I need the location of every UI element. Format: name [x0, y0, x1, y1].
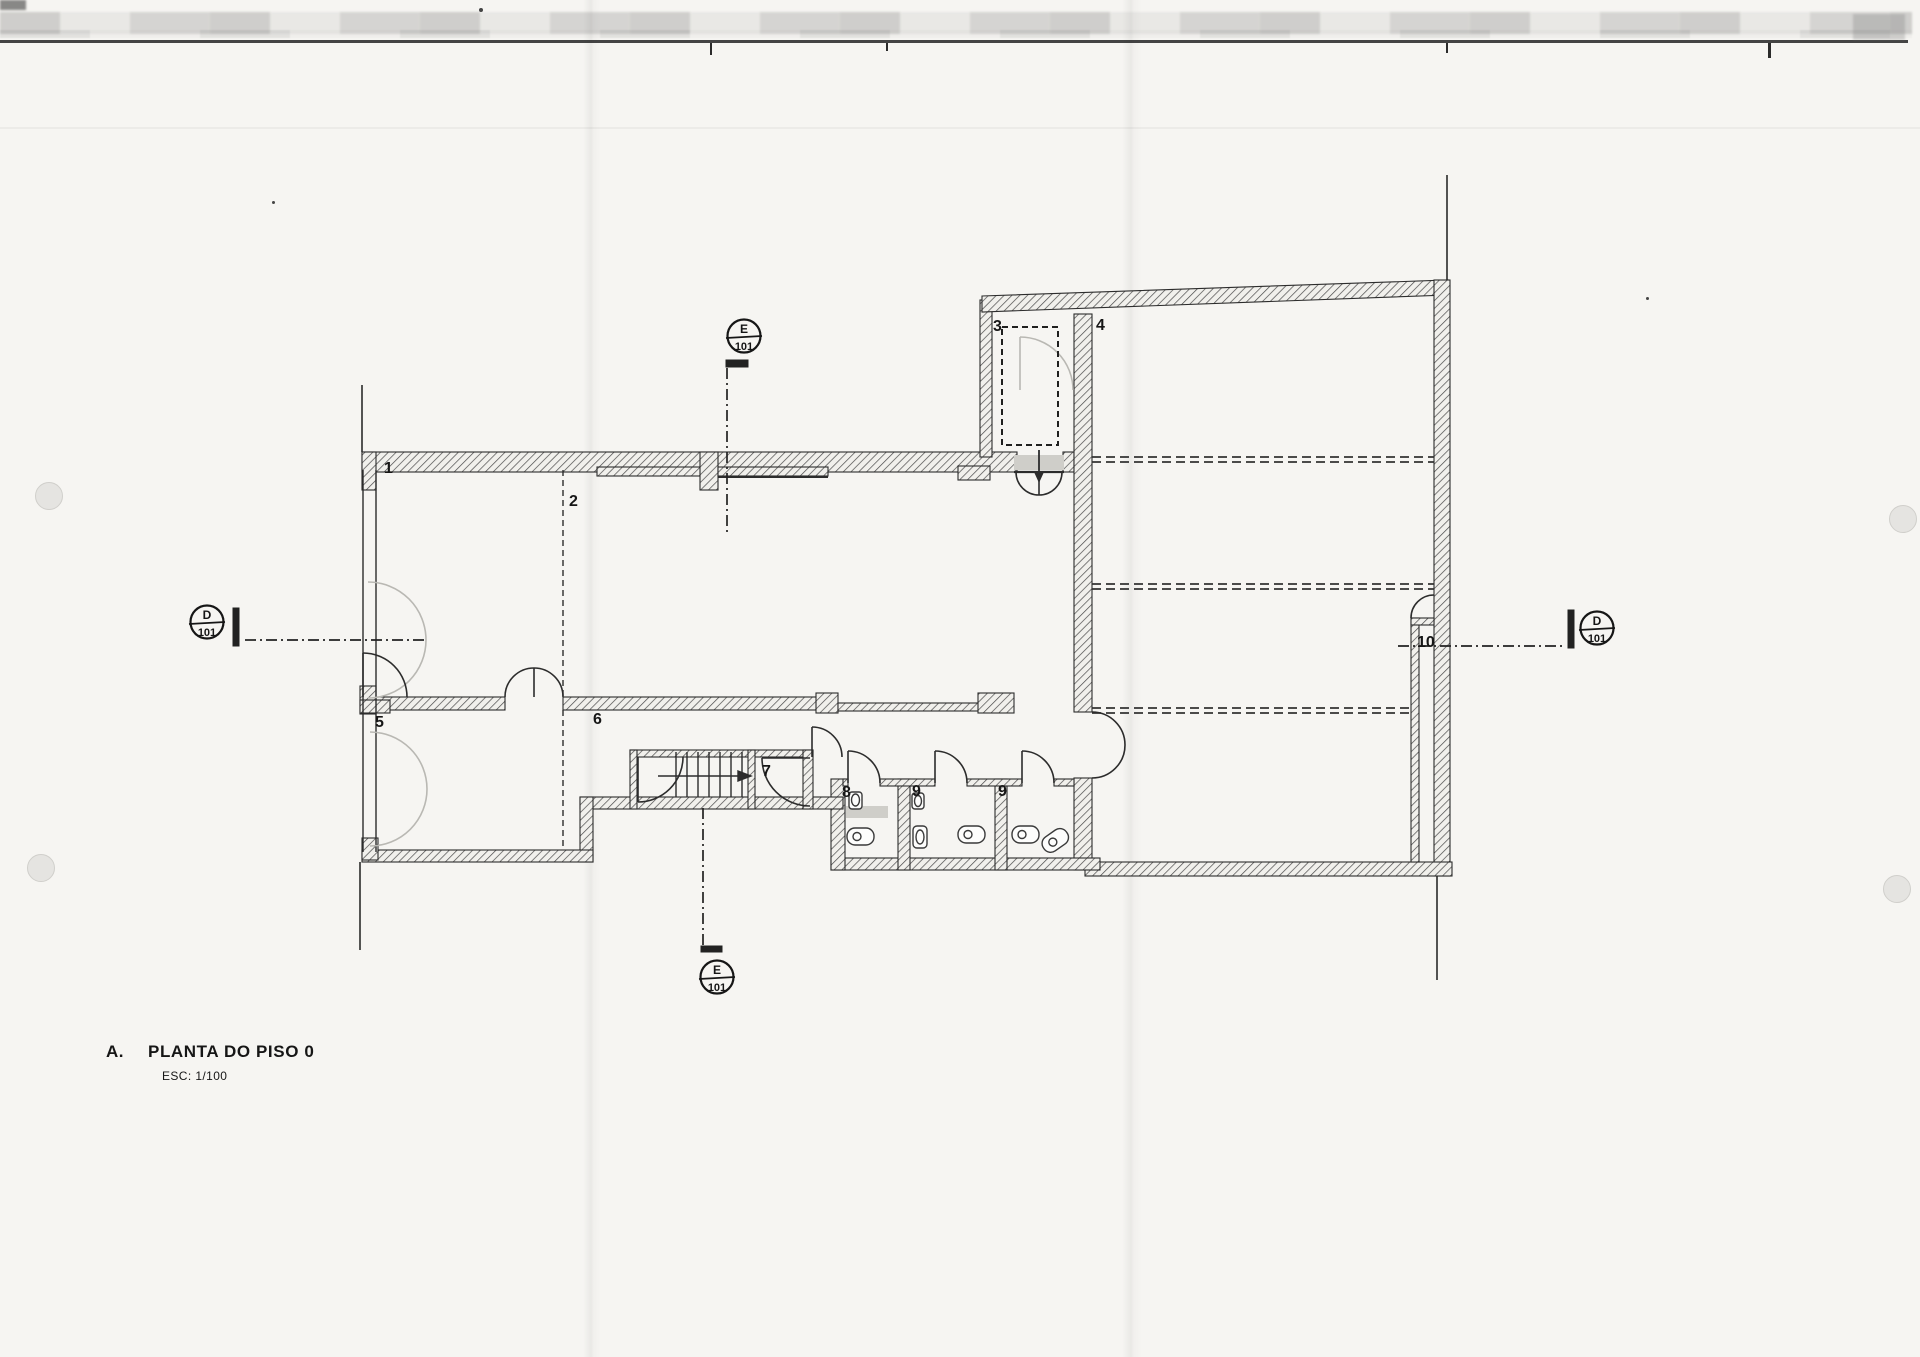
wall-segment: [362, 452, 376, 490]
wall-segment: [748, 750, 755, 809]
door-swing-arc: [534, 668, 563, 697]
scanned-sheet: E 101 D 101 D 101 E 101 1 2 3 4: [0, 0, 1920, 1357]
section-tick: [233, 608, 239, 646]
wall-segment: [360, 700, 390, 713]
arrow-head: [1034, 472, 1044, 483]
marker-sheet: 101: [1588, 633, 1606, 645]
toilet-angled: [1039, 825, 1072, 855]
drawing-scale: ESC: 1/100: [162, 1069, 314, 1083]
marker-sheet: 101: [708, 982, 726, 994]
door-swing-arc: [1411, 595, 1434, 618]
wall-segment: [967, 779, 1022, 786]
door-swing-arc: [812, 727, 842, 757]
wall-segment: [563, 697, 818, 710]
wall-segment: [630, 750, 637, 809]
wall-segment: [597, 467, 701, 476]
room-label-1: 1: [384, 460, 393, 477]
wall-segment: [1074, 314, 1092, 712]
wall-segment: [362, 850, 593, 862]
sanitary-fixtures: [847, 792, 1072, 855]
marker-letter: E: [713, 963, 721, 977]
room-label-9a: 9: [912, 783, 921, 800]
marker-divider: [699, 977, 735, 979]
marker-letter: E: [740, 322, 748, 336]
wall-segment: [958, 466, 990, 480]
door-swing-arc: [848, 751, 880, 783]
door-swing-arc: [505, 668, 534, 697]
staircase: [658, 752, 751, 797]
wall-segment: [1434, 280, 1450, 876]
wall-segment: [630, 750, 813, 757]
walls: [360, 280, 1452, 876]
wall-segment: [838, 703, 980, 711]
door-swing-arc: [1022, 751, 1054, 783]
wall-pier: [978, 693, 1014, 713]
wall-segment: [1074, 778, 1092, 870]
sink-basin: [916, 830, 924, 844]
marker-divider: [726, 336, 762, 338]
door-swing-arc: [1039, 472, 1062, 495]
wall-segment: [898, 779, 910, 870]
wall-segment: [803, 750, 813, 809]
overhead-beam-lines: [1092, 457, 1434, 713]
wall-pier: [700, 452, 718, 490]
shaft-dashed-outline: [1002, 327, 1058, 445]
wall-segment: [1054, 779, 1074, 786]
room-label-10: 10: [1417, 634, 1435, 651]
marker-sheet: 101: [735, 341, 753, 353]
marker-letter: D: [1593, 614, 1602, 628]
gray-fixtures: [846, 455, 1064, 818]
glazed-wall: [363, 470, 1064, 852]
wall-pier: [816, 693, 838, 713]
section-marker-e-top: E 101: [726, 320, 762, 354]
wall-segment: [831, 858, 1100, 870]
section-tick: [726, 360, 748, 367]
sink-basin: [852, 794, 860, 806]
marker-sheet: 101: [198, 627, 216, 639]
floor-plan-svg: E 101 D 101 D 101 E 101 1 2 3 4: [0, 0, 1920, 1357]
drawing-index: A.: [106, 1042, 124, 1062]
section-tick: [1568, 610, 1574, 648]
wall-segment: [1411, 618, 1434, 625]
wall-segment: [1411, 618, 1419, 862]
section-marker-e-bottom: E 101: [699, 961, 735, 995]
marker-divider: [189, 622, 225, 624]
toilet-bowl: [964, 831, 972, 839]
wall-segment: [718, 467, 828, 476]
door-swing-arc: [935, 751, 967, 783]
room-label-3: 3: [993, 318, 1002, 335]
room-label-4: 4: [1096, 317, 1105, 334]
door-swing-arc: [1020, 337, 1073, 390]
room-label-2: 2: [569, 493, 578, 510]
doors: [363, 472, 1434, 806]
toilet-bowl: [1018, 831, 1026, 839]
section-marker-d-right: D 101: [1579, 612, 1615, 646]
wall-segment: [1063, 452, 1074, 472]
wall-segment: [1085, 862, 1452, 876]
section-tick: [701, 946, 722, 952]
wall-segment: [880, 779, 935, 786]
wall-segment: [982, 280, 1448, 312]
marker-letter: D: [203, 608, 212, 622]
room-label-6: 6: [593, 711, 602, 728]
door-swing-arc: [1092, 712, 1125, 745]
door-swing-arc: [1092, 745, 1125, 778]
door-swing-arc: [1016, 472, 1039, 495]
marker-divider: [1579, 628, 1615, 630]
room-label-7: 7: [762, 763, 771, 780]
room-labels: 1 2 3 4 5 6 7 8 9 9 10: [375, 317, 1435, 801]
wall-segment: [980, 300, 992, 457]
drawing-title-block: A. PLANTA DO PISO 0 ESC: 1/100: [106, 1042, 314, 1083]
room-label-9b: 9: [998, 783, 1007, 800]
door-swing-arc: [368, 582, 426, 640]
drawing-title: PLANTA DO PISO 0: [148, 1042, 314, 1062]
section-marker-d-left: D 101: [189, 606, 225, 640]
door-swing-arc: [370, 732, 427, 789]
room-label-8: 8: [842, 784, 851, 801]
toilet-bowl: [853, 833, 861, 841]
room-label-5: 5: [375, 714, 384, 731]
